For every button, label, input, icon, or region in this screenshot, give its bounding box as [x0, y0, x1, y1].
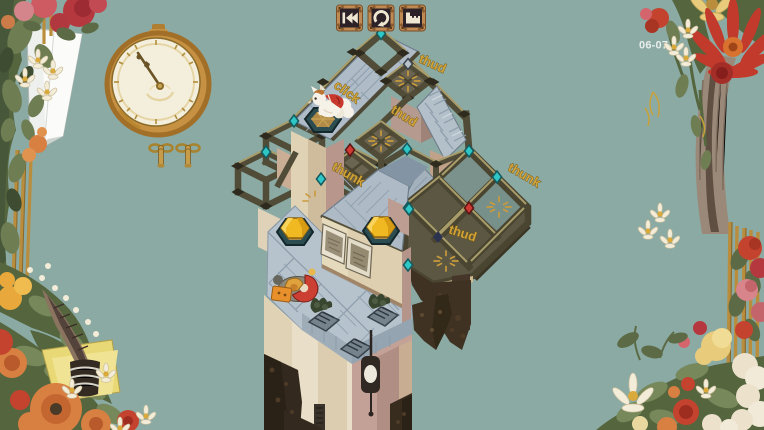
svg-text:06-07: 06-07 [639, 40, 668, 52]
